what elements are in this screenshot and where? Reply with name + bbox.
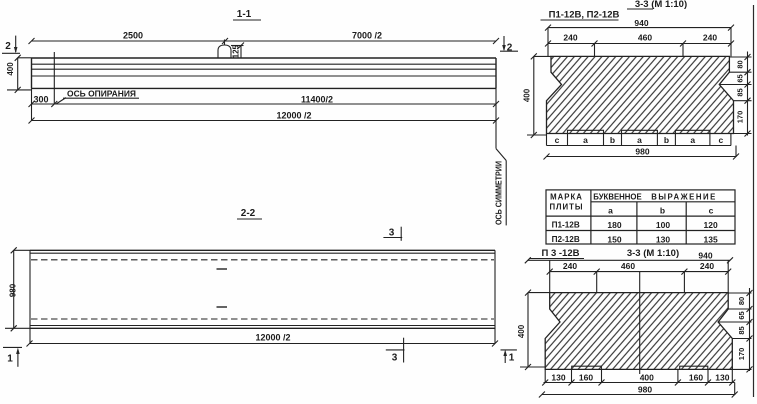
svg-text:240: 240: [700, 261, 714, 271]
svg-text:b: b: [664, 135, 669, 145]
svg-text:400: 400: [523, 88, 532, 102]
svg-text:150: 150: [607, 234, 621, 244]
svg-text:П2-12В: П2-12В: [552, 235, 580, 244]
svg-text:160: 160: [689, 373, 703, 383]
svg-text:2: 2: [507, 43, 513, 54]
svg-text:80: 80: [737, 297, 746, 305]
svg-text:с: с: [709, 206, 714, 216]
svg-text:1: 1: [509, 353, 515, 364]
svg-text:135: 135: [704, 234, 718, 244]
svg-text:2500: 2500: [123, 31, 143, 41]
svg-text:180: 180: [607, 220, 621, 230]
svg-text:3: 3: [392, 353, 398, 364]
svg-text:940: 940: [698, 251, 712, 261]
svg-text:130: 130: [715, 373, 729, 383]
svg-text:85: 85: [736, 88, 745, 96]
svg-text:80: 80: [736, 60, 745, 68]
svg-text:400: 400: [6, 62, 15, 76]
svg-text:а: а: [608, 206, 613, 216]
svg-text:65: 65: [737, 311, 746, 319]
svg-text:БУКВЕННОЕ: БУКВЕННОЕ: [593, 192, 641, 201]
svg-text:240: 240: [563, 261, 577, 271]
svg-text:c: c: [555, 135, 560, 145]
svg-text:160: 160: [579, 373, 593, 383]
svg-text:2: 2: [5, 41, 11, 52]
svg-text:85: 85: [737, 326, 746, 334]
svg-text:2-2: 2-2: [241, 208, 256, 219]
svg-text:П 3 -12В: П 3 -12В: [542, 248, 580, 259]
svg-text:ПЛИТЫ: ПЛИТЫ: [549, 203, 583, 212]
svg-text:a: a: [583, 135, 588, 145]
svg-text:c: c: [719, 135, 724, 145]
svg-text:940: 940: [634, 18, 648, 28]
svg-text:460: 460: [638, 33, 652, 43]
svg-text:12000 /2: 12000 /2: [276, 111, 311, 121]
svg-text:7000 /2: 7000 /2: [352, 31, 382, 41]
svg-text:400: 400: [640, 373, 654, 383]
svg-text:65: 65: [736, 74, 745, 82]
svg-text:ОСЬ ОПИРАНИЯ: ОСЬ ОПИРАНИЯ: [67, 89, 136, 99]
svg-text:980: 980: [635, 147, 649, 157]
svg-text:130: 130: [551, 373, 565, 383]
svg-text:ВЫРАЖЕНИЕ: ВЫРАЖЕНИЕ: [651, 192, 717, 201]
svg-text:240: 240: [563, 33, 577, 43]
svg-text:П1-12В: П1-12В: [552, 221, 580, 230]
svg-text:170: 170: [736, 111, 745, 124]
svg-text:300: 300: [33, 95, 48, 105]
svg-text:a: a: [690, 135, 695, 145]
svg-text:a: a: [637, 135, 642, 145]
svg-text:b: b: [610, 135, 615, 145]
svg-text:3: 3: [389, 228, 395, 239]
svg-text:1: 1: [7, 354, 13, 365]
svg-text:120: 120: [704, 220, 718, 230]
svg-text:b: b: [660, 206, 665, 216]
svg-text:ОСЬ СИММЕТРИИ: ОСЬ СИММЕТРИИ: [494, 161, 504, 225]
svg-text:МАРКА: МАРКА: [550, 193, 583, 202]
svg-text:170: 170: [737, 348, 746, 361]
svg-text:1-1: 1-1: [237, 9, 252, 20]
svg-text:12000 /2: 12000 /2: [255, 333, 290, 343]
svg-text:125: 125: [232, 44, 241, 58]
svg-text:980: 980: [9, 283, 18, 297]
svg-text:100: 100: [656, 220, 670, 230]
svg-text:130: 130: [656, 234, 670, 244]
svg-text:11400/2: 11400/2: [301, 95, 333, 105]
svg-text:3-3 (М 1:10): 3-3 (М 1:10): [627, 248, 679, 259]
svg-text:240: 240: [703, 33, 717, 43]
svg-text:980: 980: [638, 385, 652, 395]
svg-text:П1-12В, П2-12В: П1-12В, П2-12В: [549, 10, 620, 21]
svg-text:460: 460: [621, 261, 635, 271]
svg-text:400: 400: [517, 324, 526, 338]
